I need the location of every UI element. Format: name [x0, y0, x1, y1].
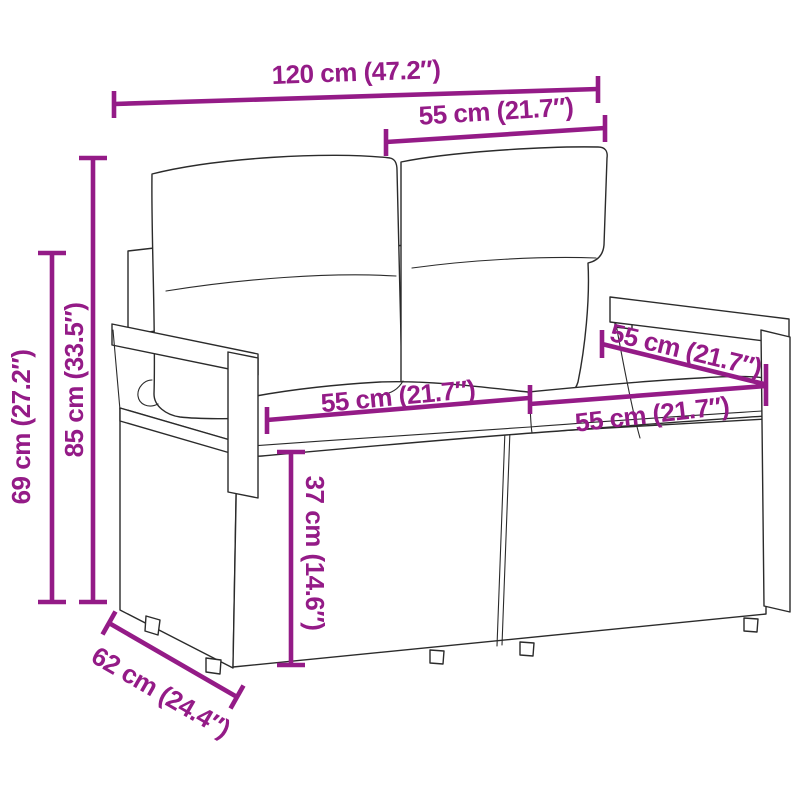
product-dimension-image: 120 cm (47.2″) 55 cm (21.7″) 85 cm (33.5…: [0, 0, 800, 800]
sofa-foot: [430, 650, 444, 664]
dim-label-total-height: 85 cm (33.5″): [59, 303, 89, 458]
back-cushion-right: [401, 147, 607, 404]
dim-label-armrest-height: 69 cm (27.2″): [6, 350, 36, 505]
sofa-foot: [520, 642, 534, 656]
sofa-foot: [744, 618, 758, 632]
left-armrest-post: [228, 352, 258, 498]
dimension-diagram: 120 cm (47.2″) 55 cm (21.7″) 85 cm (33.5…: [0, 0, 800, 800]
back-cushion-left: [138, 155, 402, 418]
sofa-foot: [145, 616, 160, 635]
dim-label-overall-width: 120 cm (47.2″): [271, 54, 441, 90]
dim-total-height: 85 cm (33.5″): [59, 158, 107, 602]
sofa-foot: [206, 658, 221, 674]
dim-label-back-cushion-width: 55 cm (21.7″): [418, 91, 574, 130]
dim-label-base-height: 37 cm (14.6″): [300, 476, 330, 631]
dim-armrest-height: 69 cm (27.2″): [6, 253, 66, 602]
